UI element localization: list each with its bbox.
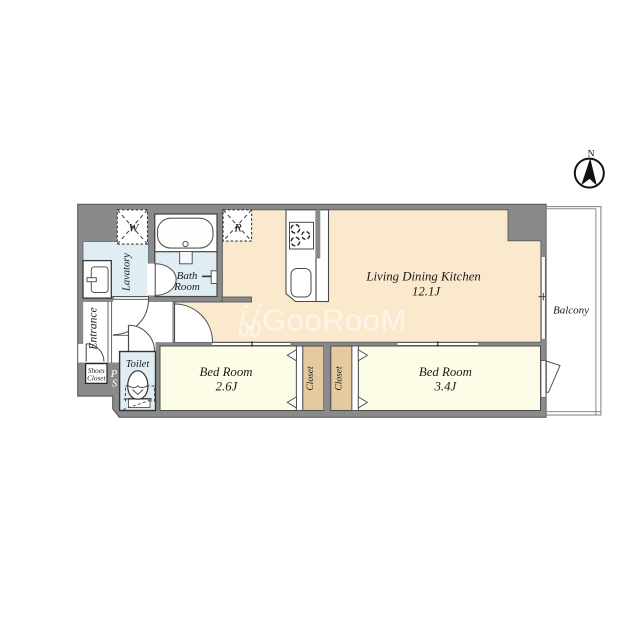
svg-text:2.6J: 2.6J [216, 380, 239, 394]
svg-text:3.4J: 3.4J [434, 380, 458, 394]
svg-text:Balcony: Balcony [553, 305, 589, 317]
svg-text:Bed Room: Bed Room [419, 365, 472, 379]
svg-text:Room: Room [173, 281, 200, 293]
svg-text:Closet: Closet [87, 375, 106, 383]
svg-text:Shoes: Shoes [88, 367, 105, 375]
svg-text:S: S [112, 379, 118, 390]
svg-text:Closet: Closet [334, 366, 344, 391]
svg-text:Entrance: Entrance [88, 307, 100, 350]
svg-text:Closet: Closet [306, 366, 316, 391]
svg-text:Bed Room: Bed Room [200, 365, 253, 379]
svg-text:W: W [129, 221, 140, 235]
svg-text:Lavatory: Lavatory [122, 253, 133, 292]
svg-text:N: N [588, 150, 595, 160]
svg-text:GooRooM: GooRooM [262, 303, 407, 338]
svg-text:Living Dining Kitchen: Living Dining Kitchen [365, 269, 480, 283]
svg-text:Toilet: Toilet [126, 359, 151, 370]
svg-text:12.1J: 12.1J [412, 284, 441, 298]
svg-text:R: R [233, 221, 242, 235]
